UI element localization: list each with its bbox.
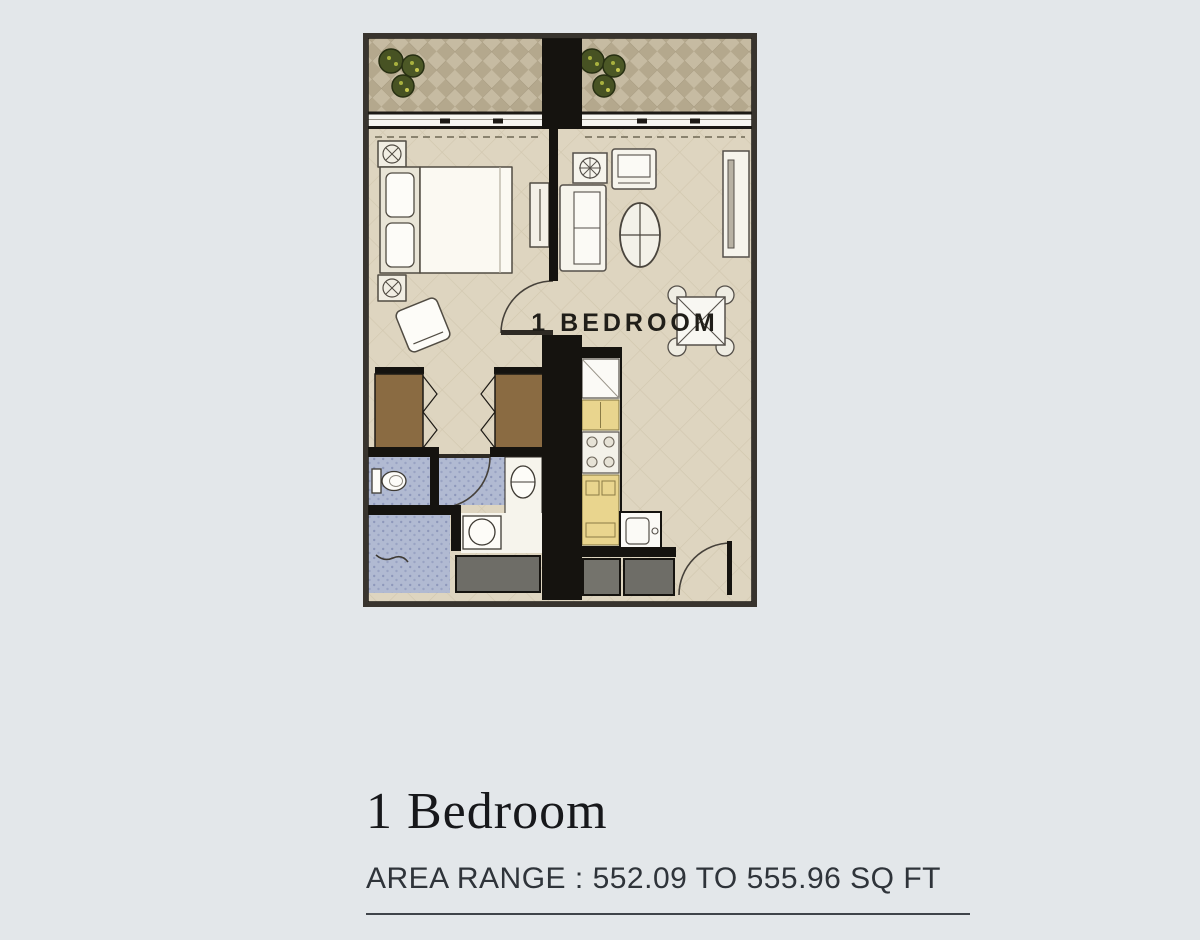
bathroom xyxy=(368,447,542,593)
structural-column xyxy=(542,35,582,129)
wardrobe-left xyxy=(375,374,423,448)
bathroom-mat xyxy=(456,556,540,592)
bathroom-entry-floor xyxy=(439,457,505,505)
kitchen-stove xyxy=(582,432,619,473)
bed-pillow xyxy=(386,173,414,217)
kitchen-sink xyxy=(620,512,661,550)
toilet xyxy=(372,469,406,493)
entry-mat-left xyxy=(583,559,620,595)
bed xyxy=(380,167,512,273)
kitchen-fridge xyxy=(582,359,619,398)
central-wall xyxy=(542,335,582,600)
kitchen-counter-lower xyxy=(582,475,619,545)
bed-pillow xyxy=(386,223,414,267)
plant-table xyxy=(573,153,607,183)
tv-console xyxy=(723,151,749,257)
floor-plan: 1 BEDROOM xyxy=(363,33,757,607)
bed-mattress xyxy=(420,167,512,273)
shower-room-floor xyxy=(368,515,450,593)
coffee-table xyxy=(620,203,660,267)
entry-mat-right xyxy=(624,559,674,595)
armchair xyxy=(612,149,656,189)
area-range: AREA RANGE : 552.09 TO 555.96 SQ FT xyxy=(366,862,941,895)
unit-title: 1 Bedroom xyxy=(366,786,608,838)
bedroom-living-divider-wall xyxy=(549,129,558,281)
floor-plan-room-label: 1 BEDROOM xyxy=(531,309,718,337)
nightstand-top xyxy=(378,141,406,167)
divider-line xyxy=(366,913,970,915)
nightstand-bottom xyxy=(378,275,406,301)
wardrobe-right xyxy=(495,374,543,448)
sofa xyxy=(560,185,606,271)
kitchen-counter-upper xyxy=(582,400,619,430)
bedroom-closet xyxy=(530,183,549,247)
floor-plan-svg: 1 BEDROOM xyxy=(363,33,757,607)
